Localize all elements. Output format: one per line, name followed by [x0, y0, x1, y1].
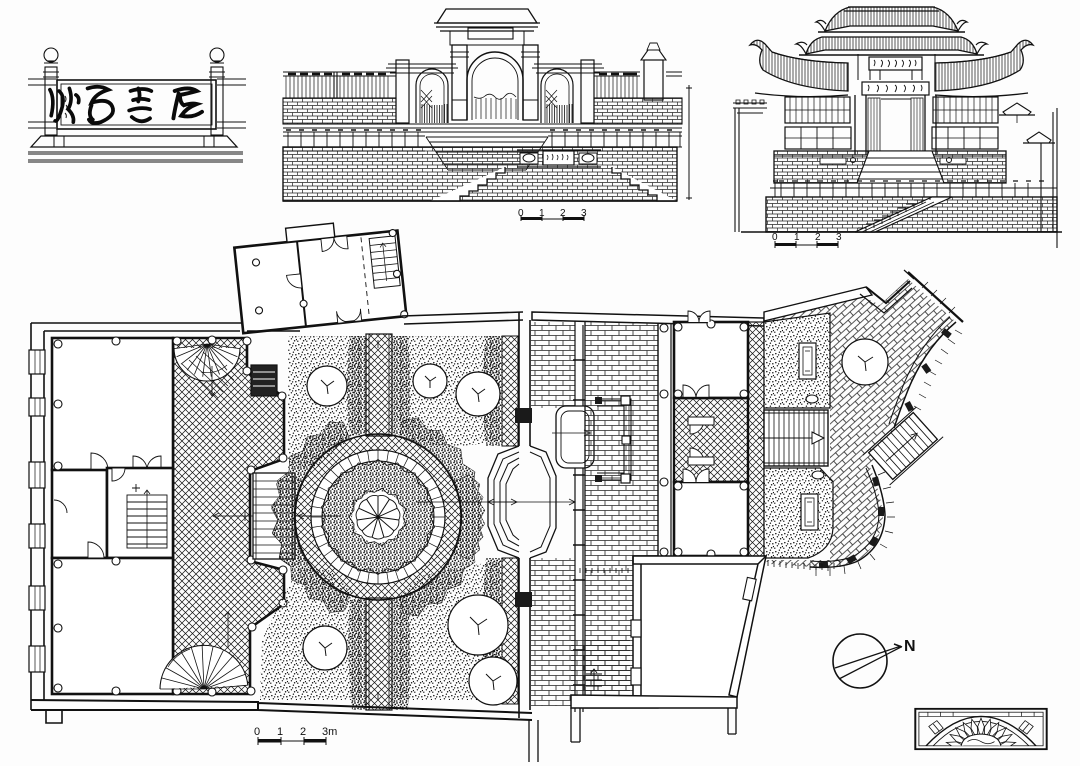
svg-text:3: 3	[836, 232, 842, 243]
svg-text:3m: 3m	[322, 726, 337, 738]
svg-text:1: 1	[794, 232, 800, 243]
svg-text:N: N	[904, 638, 916, 655]
svg-text:2: 2	[815, 232, 821, 243]
svg-text:1: 1	[277, 726, 283, 738]
svg-text:0: 0	[254, 726, 260, 738]
svg-text:2: 2	[300, 726, 306, 738]
